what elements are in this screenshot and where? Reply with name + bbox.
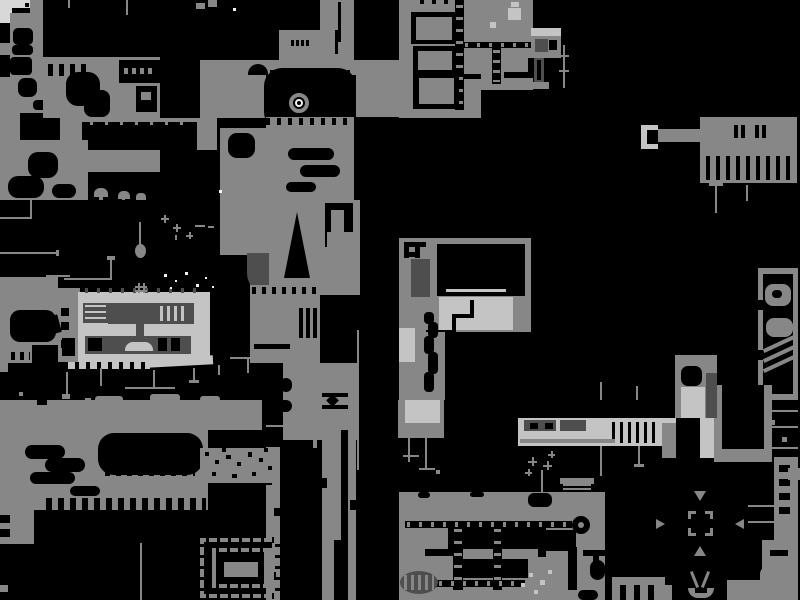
bottomleft-corner-bit — [0, 585, 8, 592]
tower-shaft-channel — [341, 430, 348, 542]
wrench-hang-line-2 — [746, 185, 748, 201]
wrench-spikes — [706, 156, 792, 180]
donut — [572, 516, 590, 534]
belowship-v3 — [153, 370, 155, 387]
dotcol-1 — [19, 392, 23, 396]
antenna-v4 — [175, 235, 177, 240]
wrench-slit-4 — [762, 125, 766, 138]
spiral-outer-ticks-right — [275, 544, 281, 592]
antenna-plus-3 — [186, 232, 193, 239]
machine-window-2 — [545, 423, 553, 429]
rightedge-checker — [777, 524, 800, 531]
rubble-speck-4 — [237, 462, 241, 466]
rooms-edge-dip — [613, 507, 621, 517]
machine-tail — [662, 423, 676, 458]
rightcol-frame-notch-2 — [758, 350, 763, 360]
wrench-hang-bar — [709, 183, 723, 186]
white-dot-mid — [219, 190, 222, 193]
rooms-corridor-2 — [425, 549, 453, 556]
rightcol-frame-notch-1 — [758, 300, 763, 310]
star-dot-3 — [185, 272, 188, 275]
midcol-box-2 — [327, 252, 339, 262]
topleft-col-snake-3 — [10, 57, 32, 75]
leftstrip-bracket-v — [313, 428, 317, 448]
platform-bar-ticks — [90, 119, 188, 125]
topleft-edge-tab-2 — [0, 77, 10, 98]
rightedge-corner-bit — [788, 468, 800, 480]
small-building-door — [549, 40, 557, 50]
mushroom-2-stem — [122, 197, 125, 200]
midcol-spire — [284, 212, 310, 278]
line-top-2 — [68, 0, 70, 8]
bottomleft-band-bump-2 — [150, 394, 180, 402]
belowship-dot-1 — [62, 394, 70, 399]
antenna-h1 — [0, 217, 30, 219]
eastmass-hslit — [254, 344, 290, 349]
tower-nick-1 — [322, 478, 327, 488]
topcenter-snake-3 — [286, 182, 316, 192]
belowship-tick — [189, 380, 199, 383]
topleft-col-snake-4 — [18, 78, 37, 97]
eastmass-teeth — [252, 287, 316, 294]
lightbox-line-1 — [408, 438, 410, 462]
spiral-core — [224, 562, 258, 577]
antenna-tickbox — [107, 256, 115, 260]
rightcol-bean-1-hole — [772, 290, 782, 298]
bottomleft-band-bump-3 — [200, 396, 220, 402]
lightbox-line-2 — [425, 438, 427, 470]
topright-notch — [528, 58, 533, 78]
bottomleft-band-bump-1 — [95, 396, 123, 402]
small-building-stem-tick-2 — [559, 70, 569, 72]
rooms-speck-4 — [534, 590, 538, 594]
platform-cave-blob-2 — [84, 90, 110, 117]
platform-studs — [124, 68, 156, 74]
topright-room-2-floor — [418, 51, 452, 70]
droplet — [135, 244, 146, 258]
wrench-slit-2 — [741, 125, 745, 138]
machine-drop-foot — [634, 464, 644, 467]
ship-lower-box-2 — [158, 338, 167, 351]
belowship-h2 — [230, 357, 260, 359]
eastmass-slit-2 — [306, 308, 310, 338]
ship-lower-box-3 — [171, 338, 180, 351]
machine-drop-line-2 — [638, 446, 640, 466]
midcol-box-3 — [343, 252, 353, 262]
topright-light-tile-3 — [490, 22, 496, 28]
mushroom-3-cap — [136, 193, 146, 200]
rubble-speck-10 — [252, 472, 256, 476]
compass-vee-right — [701, 571, 710, 588]
pbuilding-step-2 — [452, 316, 456, 334]
eastmass-bite-2 — [278, 400, 292, 412]
pbuilding-dark-block — [411, 259, 430, 297]
pbuilding-tail-light — [399, 328, 415, 362]
rooms-speck-1 — [529, 573, 533, 577]
antenna-tick-1 — [56, 250, 59, 256]
compass-arrow-left — [656, 519, 665, 529]
rooms-top-notch-2 — [470, 492, 484, 497]
wrench-slit-1 — [734, 125, 738, 138]
spiral-outer-ticks-left — [199, 544, 205, 592]
rightedge-mass-slot — [770, 550, 788, 556]
chimney-bit-1 — [196, 3, 205, 9]
hash-bar-h2 — [135, 290, 147, 292]
belowship-v5 — [218, 365, 220, 375]
rightedge-ladder-1 — [748, 505, 774, 507]
dark-building-inner — [722, 385, 764, 449]
eastmass-slit-1 — [299, 308, 303, 338]
topright-light-tile-1 — [508, 8, 521, 20]
belowship-v6 — [247, 359, 249, 373]
pbuilding-step-4 — [470, 300, 474, 318]
z-glyph-bottom — [322, 405, 348, 409]
topright-slot-ticks — [493, 50, 500, 82]
bottomleft-channel-3 — [30, 472, 75, 484]
antenna-cluster-plus-1 — [528, 457, 537, 466]
pbuilding-snake-4 — [428, 352, 438, 374]
tower-nick-2 — [350, 500, 356, 510]
line-top-1 — [126, 0, 128, 15]
lightbox-panel — [405, 400, 440, 423]
antenna-h4 — [64, 278, 112, 280]
topright-bar-1 — [464, 74, 481, 79]
star-dot-2 — [175, 280, 177, 282]
pbuilding-snake-5 — [424, 372, 434, 392]
bottomleft-channel-2 — [45, 458, 85, 472]
rubble-speck-12 — [264, 448, 268, 452]
tower-block-dashes — [291, 40, 309, 46]
rooms-right-mass-slots — [620, 585, 658, 600]
small-building-leg-hole — [537, 60, 541, 80]
lowleft-blob-1 — [28, 152, 58, 178]
rubble-speck-11 — [222, 448, 226, 452]
bottomleft-col-dot-1 — [0, 515, 10, 523]
antenna-bracket — [50, 277, 52, 289]
bottomleft-channel-1 — [25, 445, 65, 459]
belowship-v1 — [66, 372, 68, 394]
ship-left-window-1 — [61, 308, 69, 316]
eastmass-bite-1 — [280, 378, 292, 392]
rooms-speck-2 — [540, 580, 545, 585]
dark-building-light-strip — [700, 418, 714, 458]
ship-lower-box-1 — [88, 338, 102, 351]
antenna-v2 — [139, 222, 141, 235]
leftstrip-line — [266, 425, 286, 427]
topright-light-tile-2 — [511, 2, 519, 7]
pbuilding-shelf-line — [446, 289, 506, 292]
tower-shaft-channel-wide — [334, 540, 348, 600]
topright-room-3-floor — [419, 78, 454, 104]
spiral-outer-ticks-top — [206, 537, 274, 543]
lightbox-hline-2 — [419, 468, 435, 470]
machine-dark-2 — [560, 420, 586, 431]
rightedge-bottom — [727, 580, 798, 600]
bottomleft-col-dot-2 — [0, 529, 10, 537]
lowleft-blob-2 — [8, 176, 44, 198]
lightbox-dot — [436, 470, 440, 474]
rooms-speck-3 — [548, 570, 552, 574]
rooms-room-5 — [502, 559, 528, 578]
rubble-speck-8 — [212, 472, 216, 476]
bottomleft-teeth-row — [46, 498, 206, 510]
topleft-block-hole-3 — [25, 3, 29, 7]
rooms-room-4 — [463, 559, 493, 578]
topleft-col-snake-2 — [12, 45, 33, 55]
star-dot-5 — [205, 277, 207, 279]
rubble-speck-3 — [226, 455, 231, 459]
white-dot-top — [233, 8, 236, 11]
antenna-cluster-plus-4 — [548, 451, 555, 458]
rightedge-window-4 — [779, 507, 790, 514]
ship-engine-stripes — [85, 305, 106, 321]
lowleft-edge — [0, 107, 20, 140]
ship-left-black-box — [62, 338, 75, 356]
rooms-room-2 — [502, 528, 539, 549]
rightedge-ladder-2 — [748, 521, 774, 523]
compass-arrow-up — [694, 491, 706, 501]
compass-vee-left — [690, 571, 699, 588]
antenna-dash-2 — [208, 226, 214, 228]
topcenter-left-notch — [228, 133, 255, 158]
antenna-plus-2 — [173, 224, 181, 232]
tower-crack-2 — [335, 30, 338, 54]
topcenter-lower-teeth — [266, 118, 354, 125]
topcenter-gray-right — [356, 60, 400, 117]
rooms-speck-5 — [521, 583, 525, 587]
midcol-corner-cut — [220, 255, 250, 295]
game-map-viewport[interactable] — [0, 0, 800, 600]
belowship-h1 — [125, 387, 175, 389]
rooms-lens-slats — [404, 575, 434, 590]
rooms-right-slot — [568, 547, 577, 590]
compass-arrow-right — [735, 519, 744, 529]
rightedge-line-1 — [768, 410, 798, 412]
spiral-mid-ticks-bottom — [216, 583, 264, 589]
compass-bowl-notch — [695, 588, 707, 593]
star-dot-4 — [196, 284, 199, 287]
line-above-1 — [600, 382, 602, 400]
antenna-cluster-plus-2 — [543, 461, 552, 470]
rubble-speck-2 — [215, 460, 219, 464]
machine-mid-strip — [520, 439, 615, 443]
antenna-v1 — [30, 200, 32, 219]
tower-crack-1 — [338, 2, 341, 42]
topleft-edge-notch-1 — [0, 23, 10, 43]
leftmid-edge — [0, 338, 8, 372]
small-building-roof — [531, 28, 561, 36]
pbox-blob — [681, 366, 702, 386]
tower-thin-line — [357, 330, 359, 470]
star-dot-1 — [164, 274, 167, 277]
rubble-speck-5 — [248, 452, 252, 457]
compass-arrow-down — [694, 546, 706, 556]
small-building-stem — [563, 45, 565, 88]
topright-corridor-ticks — [465, 43, 531, 47]
lightbox-hline-1 — [403, 455, 419, 457]
star-dot-7 — [170, 287, 172, 289]
platform-shelf-cut — [160, 150, 217, 172]
topright-top-ticks — [420, 0, 465, 4]
topleft-edge-tab-1 — [0, 43, 10, 55]
antenna-plus-1 — [161, 215, 169, 223]
small-building-stem-tick-1 — [559, 55, 569, 57]
topleft-edge-notch-2 — [0, 55, 8, 77]
small-building-window — [535, 39, 548, 52]
wrench-slit-3 — [755, 125, 759, 138]
rightedge-tick-2 — [782, 437, 787, 442]
rooms-vslot-3 — [538, 527, 546, 557]
spiral-outer-ticks-bottom — [206, 593, 274, 599]
lowleft-curl — [52, 184, 76, 198]
rubble-speck-6 — [259, 458, 263, 462]
pbuilding-meander-4 — [409, 252, 420, 257]
bottomleft-cave-teeth — [105, 468, 195, 476]
rooms-bite-2 — [578, 590, 598, 600]
rubble-speck-1 — [205, 452, 209, 456]
midcol-box — [327, 232, 353, 248]
compass-brackets — [688, 511, 713, 536]
bottomleft-band-notch — [37, 400, 47, 405]
ship-lower-mound — [125, 342, 153, 351]
rightedge-window-2 — [779, 479, 790, 486]
rooms-bite-1 — [590, 560, 605, 580]
star-dot-6 — [212, 286, 214, 288]
bottomleft-line — [140, 543, 142, 600]
rightedge-bottom-lump — [760, 566, 798, 582]
rubble-speck-9 — [232, 474, 237, 478]
ship-scallop — [68, 362, 150, 369]
hash-bar-h1 — [135, 286, 147, 288]
antenna-h2 — [0, 252, 57, 254]
antenna-cluster-plus-3 — [525, 469, 532, 476]
pbox-dark-col — [706, 373, 717, 418]
bottomleft-hole — [70, 486, 100, 496]
topleft-col-snake-1 — [13, 28, 33, 45]
leftstrip-notch-2 — [274, 508, 280, 516]
rightcol-bean-2 — [766, 318, 793, 337]
eastmass-slit-3 — [313, 308, 317, 338]
pbuilding-light-room — [439, 297, 513, 330]
pbox-light — [681, 387, 705, 418]
ship-band-slats — [160, 306, 184, 321]
wrench-hang-line-1 — [715, 185, 717, 213]
antenna-dash-1 — [195, 225, 205, 227]
antenna-v3 — [110, 258, 112, 280]
platform-box2-dot — [141, 92, 151, 100]
machine-slats — [612, 422, 660, 443]
topright-room-1-floor — [416, 17, 452, 40]
machine-drop-line-1 — [600, 446, 602, 476]
topcenter-snake-1 — [288, 148, 334, 160]
ship-left-window-2 — [61, 322, 69, 330]
eastmass-ext — [283, 363, 358, 440]
machine-window-1 — [530, 423, 538, 429]
rightedge-line-3 — [768, 447, 798, 449]
ribs-stack — [563, 484, 591, 502]
platform-black-bar — [82, 122, 197, 150]
rooms-top-wedge — [528, 493, 552, 507]
rooms-top-notch-1 — [418, 492, 430, 498]
small-building-foot — [531, 82, 549, 89]
belowship-v2 — [100, 368, 102, 386]
wrench-arm — [658, 129, 702, 142]
spiral-mid-ticks-top — [216, 547, 264, 553]
line-above-2 — [636, 386, 638, 400]
rubble-speck-7 — [268, 466, 272, 470]
ship-connector — [136, 324, 144, 336]
topcenter-snake-2 — [300, 165, 340, 177]
wrench-bracket-hole — [647, 130, 658, 144]
chimney-bit-2 — [208, 0, 217, 7]
mushroom-1-stem — [99, 195, 103, 200]
target-ring-inner — [295, 99, 303, 107]
rightedge-window-3 — [779, 493, 790, 500]
